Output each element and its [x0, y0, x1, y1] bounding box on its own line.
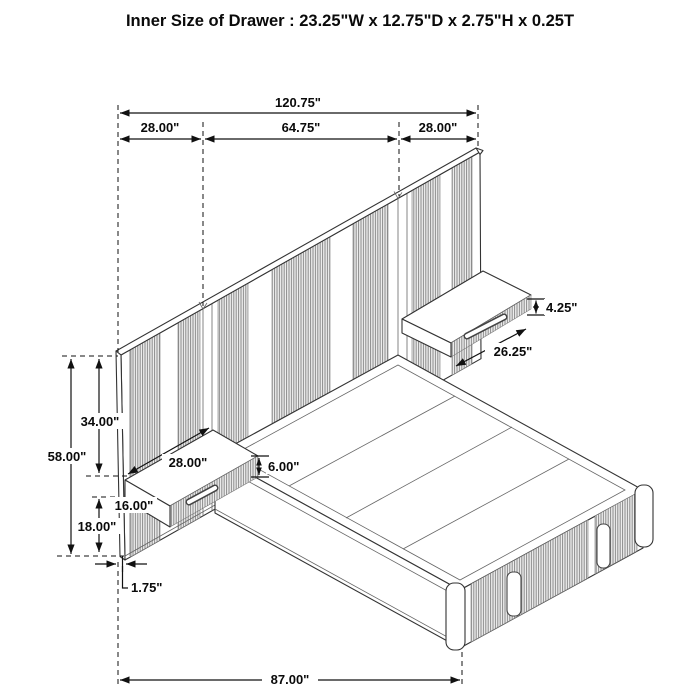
dim-overall-width-label: 120.75": [275, 95, 321, 110]
dim-panel-thickness: 1.75": [95, 556, 169, 595]
dim-left-nightstand-height-label: 6.00": [268, 459, 299, 474]
dim-top-to-nightstand-label: 34.00": [81, 414, 120, 429]
dim-right-nightstand-height-label: 4.25": [546, 300, 577, 315]
drawing-title: Inner Size of Drawer : 23.25"W x 12.75"D…: [126, 12, 574, 30]
bed-foot-left-post: [446, 583, 465, 650]
dim-clearance-label: 18.00": [78, 519, 117, 534]
dim-bed-height-label: 16.00": [115, 498, 154, 513]
dim-left-panel-width: 28.00": [120, 120, 201, 139]
dim-right-panel-width: 28.00": [401, 120, 476, 139]
dim-center-panel-width: 64.75": [205, 120, 397, 139]
dim-headboard-height-label: 58.00": [48, 449, 87, 464]
bed-drawer-handle-2: [597, 524, 610, 568]
bed-foot-right-post: [635, 485, 653, 547]
dim-overall-width: 120.75": [120, 95, 476, 113]
dim-right-nightstand-height: 4.25": [527, 299, 582, 315]
dim-bed-length-label: 87.00": [271, 672, 310, 687]
bed-dimension-diagram: 120.75" 28.00" 64.75" 28.00" 58.00" 34.0…: [0, 0, 700, 700]
dim-left-nightstand-width-label: 28.00": [169, 455, 208, 470]
dim-right-panel-label: 28.00": [419, 120, 458, 135]
dim-center-panel-label: 64.75": [282, 120, 321, 135]
dim-left-nightstand-height: 6.00": [251, 456, 306, 477]
dim-panel-thickness-label: 1.75": [131, 580, 162, 595]
technical-drawing-page: 120.75" 28.00" 64.75" 28.00" 58.00" 34.0…: [0, 0, 700, 700]
dim-left-panel-label: 28.00": [141, 120, 180, 135]
bed-drawer-handle-1: [507, 572, 521, 616]
dim-bed-length: 87.00": [120, 672, 460, 687]
dim-right-nightstand-width-label: 26.25": [494, 344, 533, 359]
